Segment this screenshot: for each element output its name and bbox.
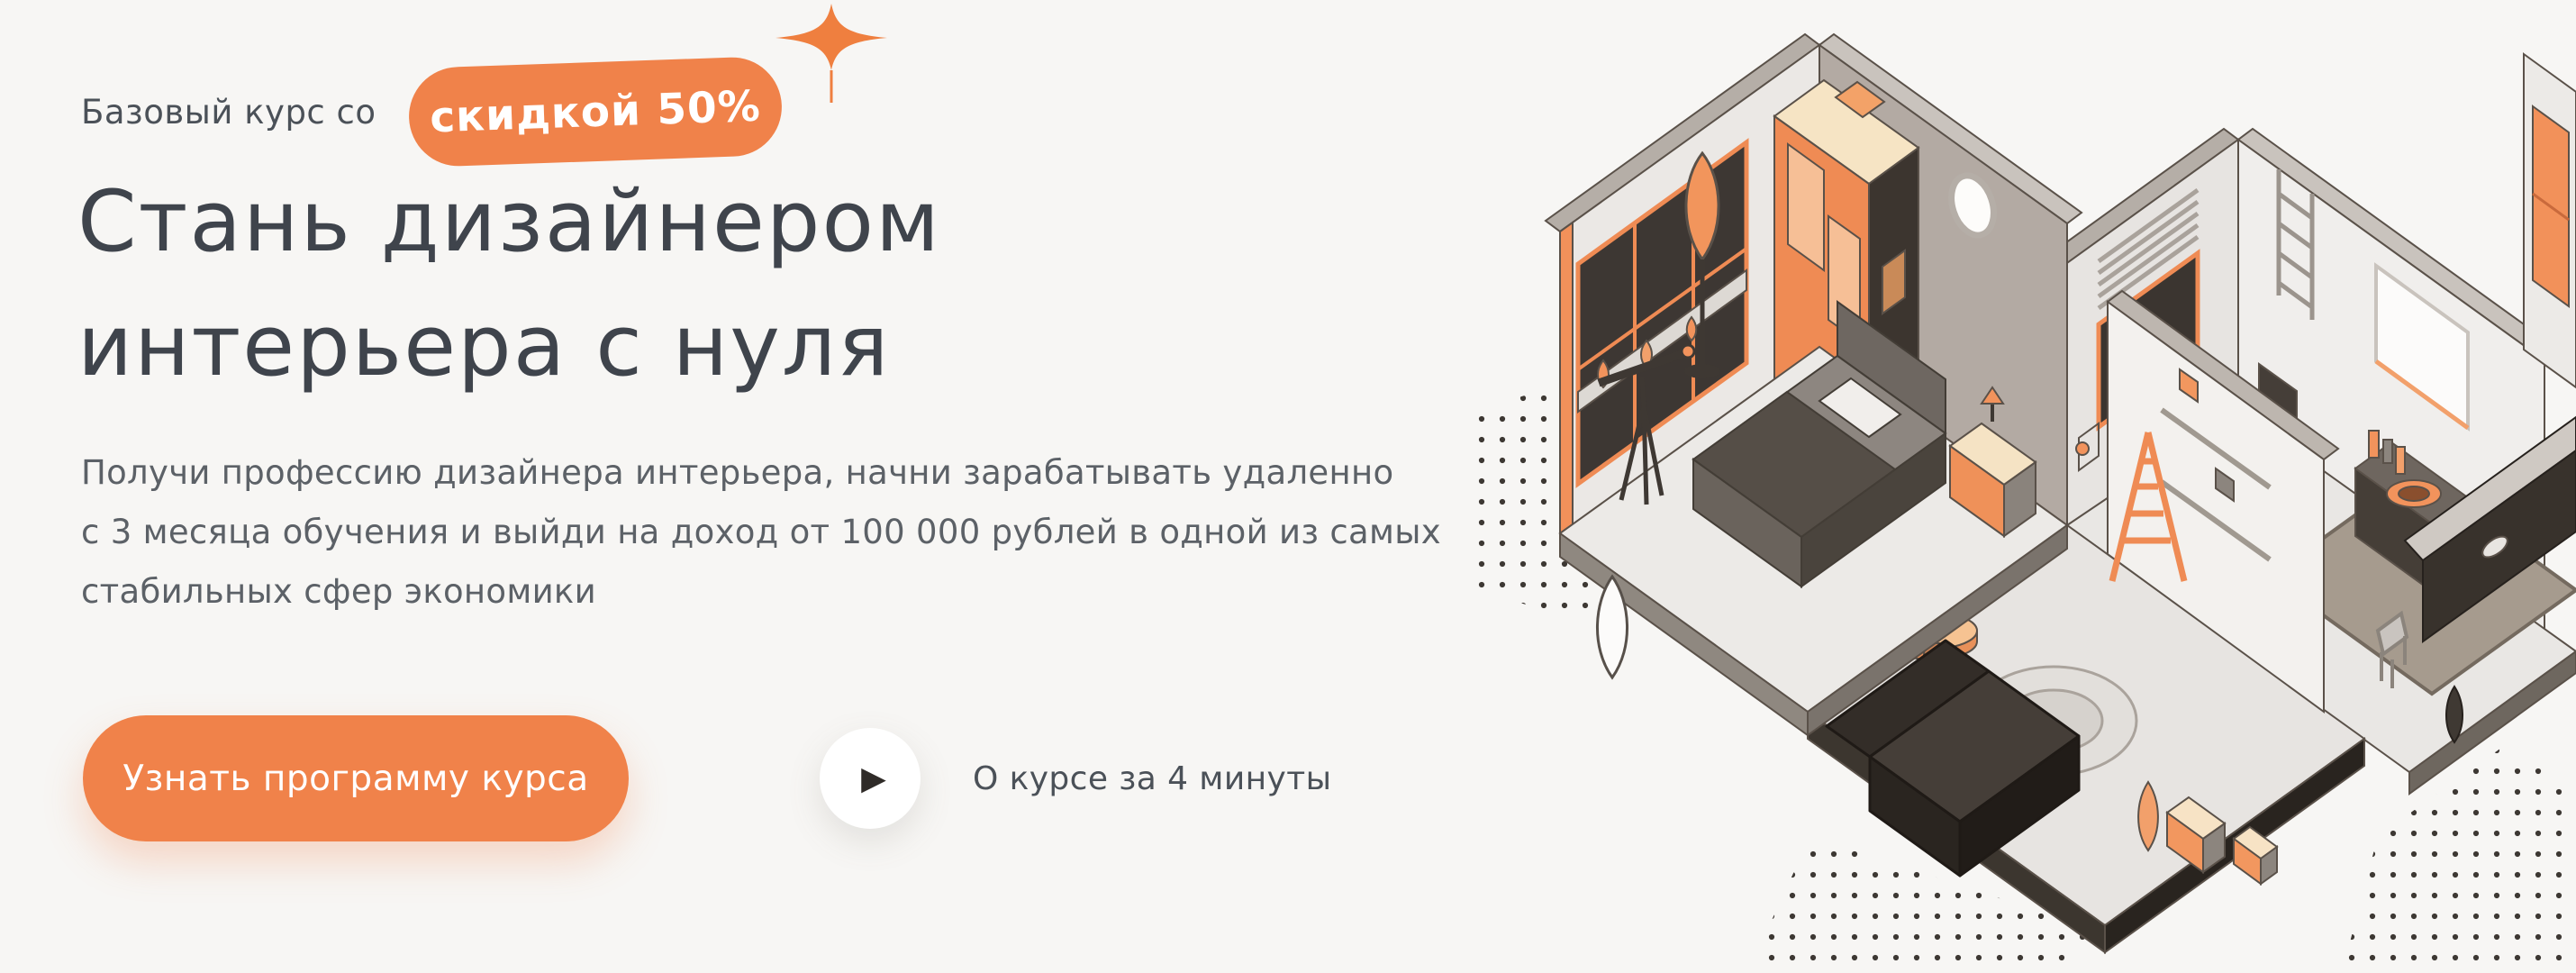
discount-badge: скидкой 50% xyxy=(407,56,784,168)
kitchen-cabinet xyxy=(2524,54,2576,387)
hero-description: Получи профессию дизайнера интерьера, на… xyxy=(81,443,1441,622)
video-caption: О курсе за 4 минуты xyxy=(973,760,1331,797)
play-video-button[interactable]: ▶ xyxy=(820,728,921,829)
sparkle-icon xyxy=(761,0,905,117)
description-line-1: Получи профессию дизайнера интерьера, на… xyxy=(81,443,1441,503)
play-icon: ▶ xyxy=(861,762,886,795)
description-line-2: с 3 месяца обучения и выйди на доход от … xyxy=(81,503,1441,562)
title-line-1: Стань дизайнером xyxy=(77,160,941,285)
apartment-illustration xyxy=(1477,0,2576,973)
landing-hero: Базовый курс со скидкой 50% Стань дизайн… xyxy=(0,0,2576,973)
cta-row: Узнать программу курса ▶ О курсе за 4 ми… xyxy=(83,715,1331,841)
page-title: Стань дизайнером интерьера с нуля xyxy=(77,160,941,409)
description-line-3: стабильных сфер экономики xyxy=(81,562,1441,622)
course-program-button[interactable]: Узнать программу курса xyxy=(83,715,629,841)
eyebrow-text: Базовый курс со xyxy=(81,93,376,132)
eyebrow-row: Базовый курс со скидкой 50% xyxy=(81,61,782,162)
title-line-2: интерьера с нуля xyxy=(77,285,941,409)
